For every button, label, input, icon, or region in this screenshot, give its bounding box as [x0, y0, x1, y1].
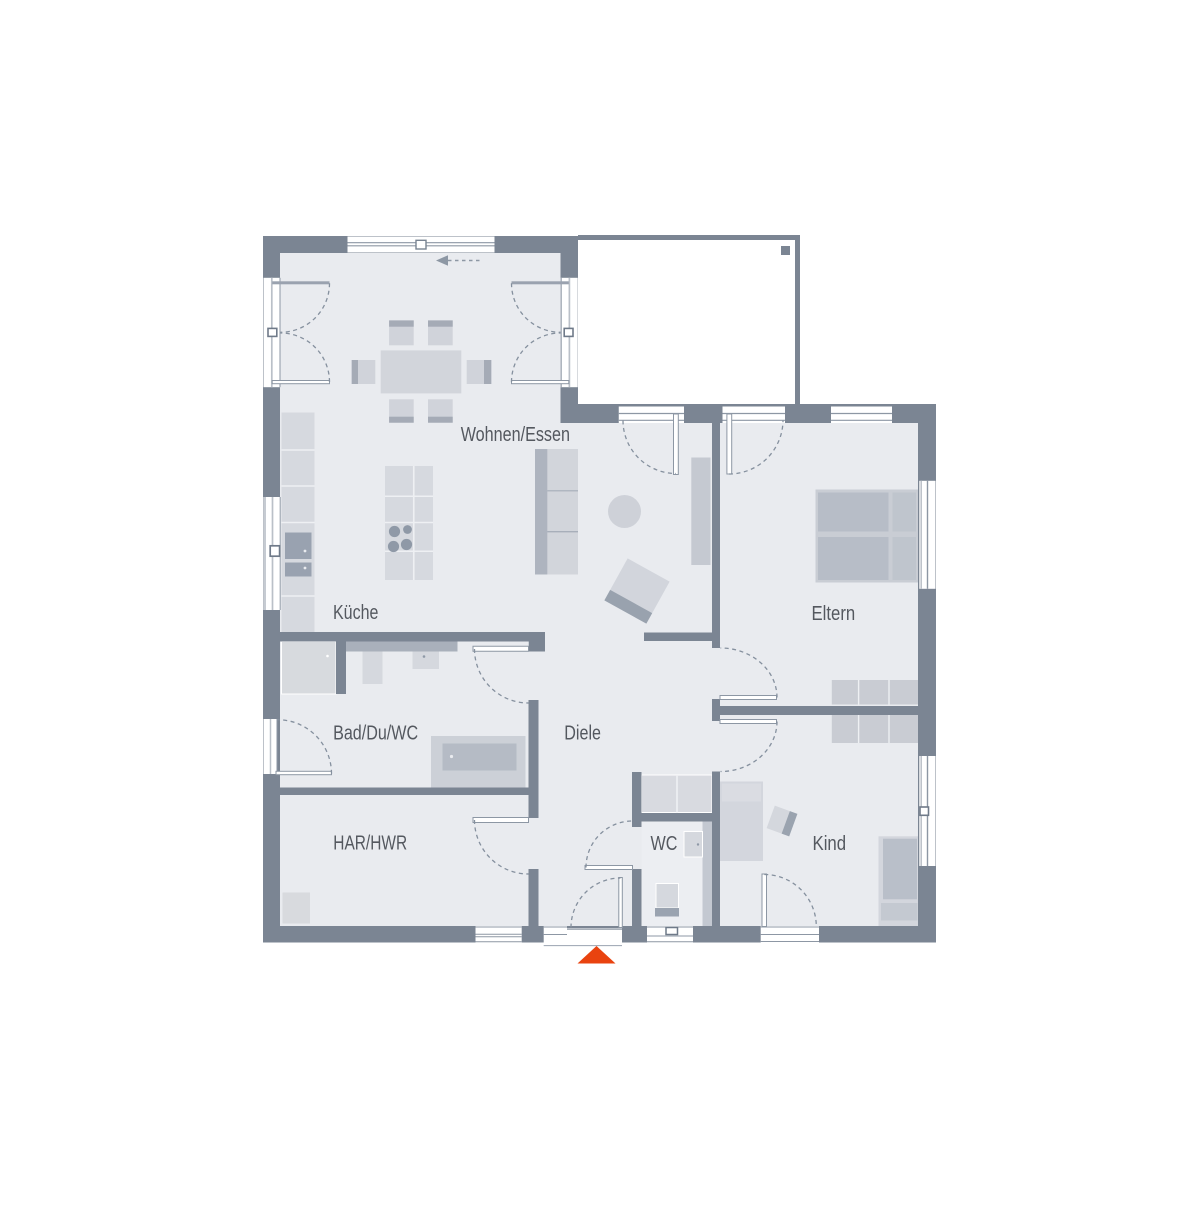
- svg-text:Bad/Du/WC: Bad/Du/WC: [333, 723, 418, 745]
- svg-text:Eltern: Eltern: [812, 603, 856, 625]
- svg-text:WC: WC: [651, 833, 678, 855]
- svg-text:Küche: Küche: [333, 602, 378, 624]
- svg-text:Wohnen/Essen: Wohnen/Essen: [461, 424, 570, 446]
- svg-text:HAR/HWR: HAR/HWR: [333, 833, 407, 855]
- svg-text:Diele: Diele: [564, 722, 601, 744]
- svg-text:Kind: Kind: [813, 833, 847, 855]
